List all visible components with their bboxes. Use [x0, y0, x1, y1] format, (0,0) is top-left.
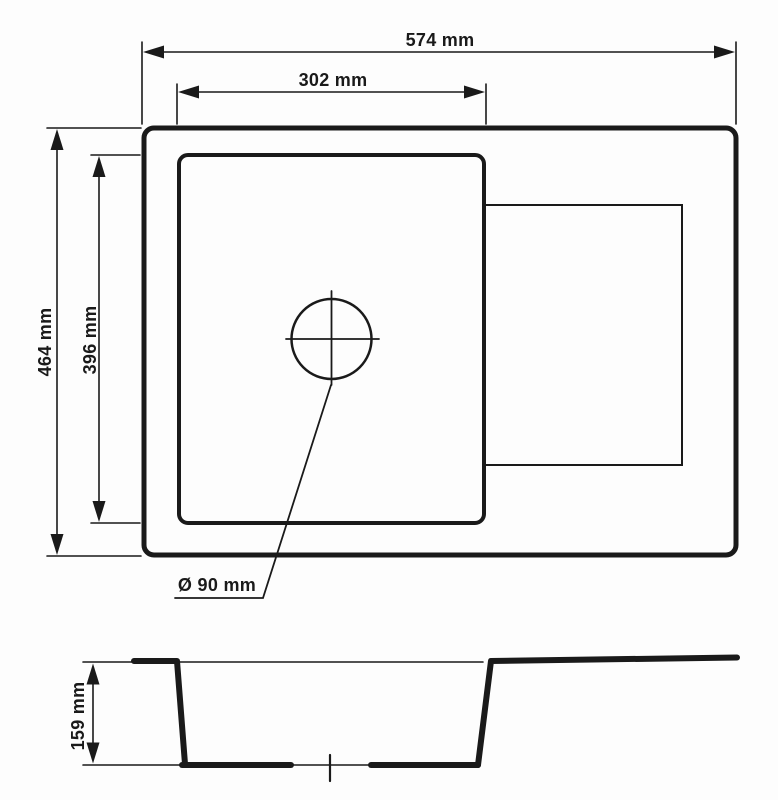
section-bowl-depth-label: 159 mm	[68, 682, 88, 751]
drain-leader-line	[175, 385, 331, 598]
arrowhead-bottom-159	[87, 743, 100, 764]
arrowhead-top-396	[93, 156, 106, 177]
arrowhead-left-302	[178, 86, 199, 99]
arrowhead-bottom-396	[93, 501, 106, 522]
arrowhead-top-159	[87, 664, 100, 685]
section-right-wall-and-drainboard	[478, 658, 737, 766]
overall-depth-label: 464 mm	[35, 308, 55, 377]
bowl-width-label: 302 mm	[299, 70, 368, 90]
drainboard-outline	[483, 205, 682, 465]
arrowhead-left-574	[143, 46, 164, 59]
section-left-rim-and-wall	[134, 661, 185, 764]
dim-bowl-width	[177, 84, 486, 124]
arrowhead-right-574	[714, 46, 735, 59]
drain-diameter-label: Ø 90 mm	[178, 575, 256, 595]
drawing-strokes	[47, 42, 737, 781]
dimension-labels: 574 mm 302 mm 464 mm 396 mm Ø 90 mm 159 …	[35, 30, 474, 750]
arrowhead-bottom-464	[51, 534, 64, 555]
arrowhead-top-464	[51, 129, 64, 150]
sink-dimension-drawing: 574 mm 302 mm 464 mm 396 mm Ø 90 mm 159 …	[0, 0, 778, 800]
bowl-depth-label: 396 mm	[80, 306, 100, 375]
section-view	[83, 658, 737, 782]
sink-outer-outline	[144, 128, 736, 555]
sink-dimension-drawing-page: 574 mm 302 mm 464 mm 396 mm Ø 90 mm 159 …	[0, 0, 778, 800]
dim-overall-width	[142, 42, 736, 124]
arrowhead-right-302	[464, 86, 485, 99]
overall-width-label: 574 mm	[406, 30, 475, 50]
